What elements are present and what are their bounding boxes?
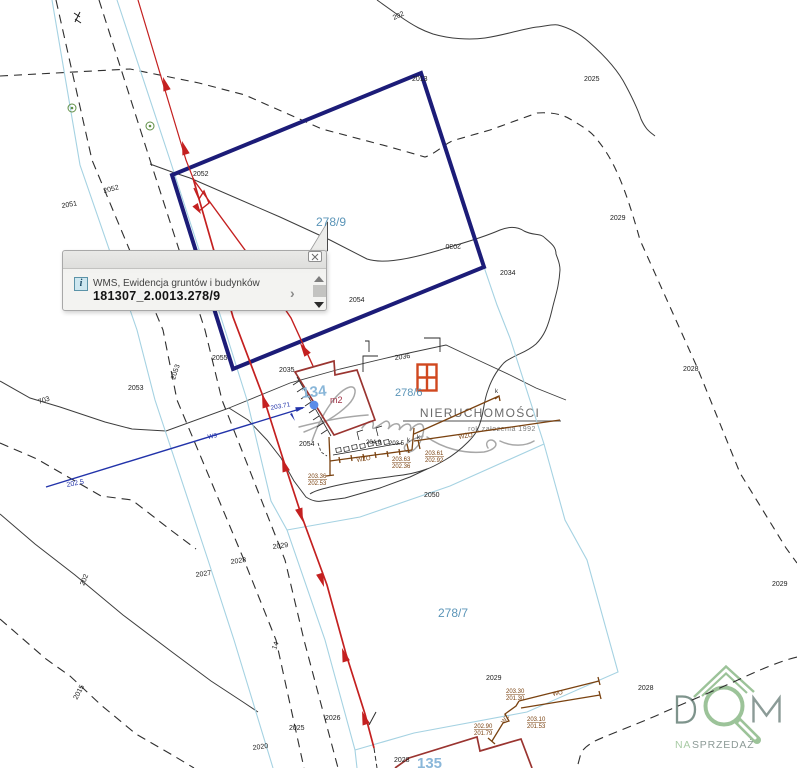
svg-text:2053: 2053	[128, 385, 144, 392]
svg-text:14: 14	[271, 641, 280, 651]
svg-text:2025: 2025	[584, 76, 600, 83]
svg-text:202.36: 202.36	[392, 464, 411, 470]
svg-text:278/9: 278/9	[316, 215, 346, 229]
svg-text:135: 135	[417, 755, 442, 768]
svg-text:2030: 2030	[445, 242, 461, 249]
svg-text:2029: 2029	[610, 215, 626, 222]
svg-text:2020: 2020	[252, 743, 269, 752]
svg-text:134: 134	[301, 382, 328, 402]
svg-text:2029: 2029	[772, 581, 788, 588]
svg-text:203.63: 203.63	[392, 457, 411, 463]
svg-text:NIERUCHOMOŚCI: NIERUCHOMOŚCI	[420, 405, 540, 420]
svg-text:2052: 2052	[103, 184, 120, 195]
svg-text:2028: 2028	[230, 557, 247, 566]
svg-text:2053: 2053	[170, 364, 182, 381]
svg-text:2055: 2055	[212, 355, 228, 362]
svg-text:201.53: 201.53	[527, 724, 546, 730]
svg-text:2052: 2052	[193, 171, 209, 178]
svg-text:m2: m2	[330, 395, 343, 405]
svg-text:2028: 2028	[638, 685, 654, 692]
svg-text:203.71: 203.71	[270, 401, 291, 412]
svg-text:2028: 2028	[394, 757, 410, 764]
svg-text:SPRZEDAŻ: SPRZEDAŻ	[692, 738, 754, 751]
svg-text:203.61: 203.61	[425, 451, 444, 457]
svg-text:202: 202	[79, 573, 90, 587]
svg-text:202.92: 202.92	[425, 458, 444, 464]
svg-text:203.10: 203.10	[527, 717, 546, 723]
svg-text:278/6: 278/6	[395, 387, 423, 399]
svg-text:k: k	[495, 389, 499, 395]
svg-text:2013: 2013	[412, 76, 428, 83]
svg-text:2028: 2028	[683, 366, 699, 373]
svg-text:278/7: 278/7	[438, 606, 468, 620]
svg-text:202.53: 202.53	[308, 481, 327, 487]
svg-text:WŻO: WŻO	[356, 455, 371, 464]
svg-text:2035: 2035	[279, 367, 295, 374]
svg-text:NA: NA	[675, 739, 691, 751]
svg-text:203.36: 203.36	[308, 474, 327, 480]
svg-text:2027: 2027	[195, 570, 212, 579]
svg-text:201.79: 201.79	[474, 731, 493, 737]
svg-text:W9: W9	[207, 432, 218, 441]
svg-text:2050: 2050	[424, 492, 440, 499]
svg-text:2034: 2034	[500, 270, 516, 277]
svg-text:2054: 2054	[349, 297, 365, 304]
svg-text:203.30: 203.30	[506, 689, 525, 695]
svg-text:2051: 2051	[61, 200, 78, 210]
svg-text:703: 703	[37, 396, 50, 406]
svg-text:2054: 2054	[299, 441, 315, 448]
svg-text:2025: 2025	[289, 725, 305, 732]
svg-text:203.5: 203.5	[389, 441, 405, 447]
svg-text:202.90: 202.90	[474, 724, 493, 730]
svg-text:2015: 2015	[73, 684, 87, 701]
svg-text:WŻO: WŻO	[458, 432, 473, 441]
svg-text:2026: 2026	[325, 715, 341, 722]
svg-text:204.6: 204.6	[366, 440, 382, 446]
svg-text:201.30: 201.30	[506, 696, 525, 702]
svg-text:2036: 2036	[394, 353, 411, 362]
svg-text:2029: 2029	[272, 542, 289, 551]
svg-text:2029: 2029	[486, 675, 502, 682]
